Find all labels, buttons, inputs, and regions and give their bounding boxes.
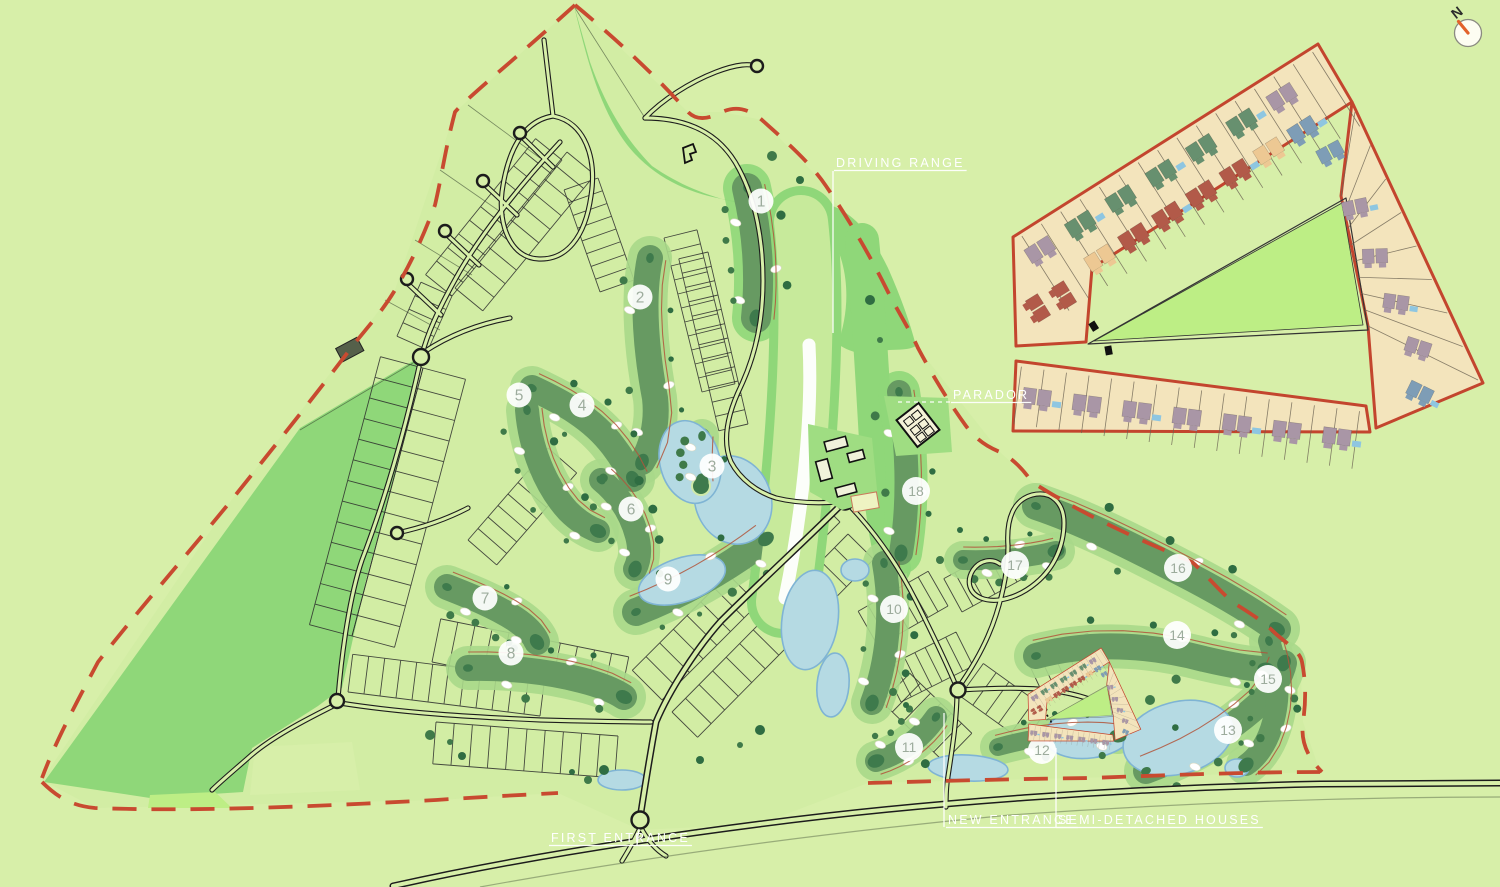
hole-number: 16 [1170, 560, 1186, 576]
golf-hole-marker-16: 16 [1164, 554, 1192, 582]
hole-number: 2 [636, 290, 645, 307]
label-text: DRIVING RANGE [836, 156, 965, 170]
golf-hole-marker-15: 15 [1254, 665, 1282, 693]
golf-hole-marker-17: 17 [1001, 551, 1029, 579]
hole-number: 7 [481, 591, 490, 608]
site-plan-page: DRIVING RANGEPARADORFIRST ENTRANCENEW EN… [0, 0, 1500, 887]
hole-number: 3 [708, 459, 717, 476]
golf-hole-marker-10: 10 [880, 595, 908, 623]
golf-resort-master-plan-map: DRIVING RANGEPARADORFIRST ENTRANCENEW EN… [0, 0, 1500, 887]
hole-number: 13 [1220, 722, 1236, 738]
label-text: PARADOR [953, 388, 1029, 402]
hole-number: 15 [1260, 671, 1276, 687]
hole-number: 4 [578, 398, 587, 415]
golf-hole-marker-4: 4 [570, 393, 595, 418]
hole-number: 9 [664, 572, 673, 589]
golf-hole-marker-3: 3 [700, 454, 725, 479]
hole-number: 14 [1169, 627, 1185, 643]
label-text: SEMI-DETACHED HOUSES [1058, 813, 1261, 827]
map-label-first-entrance: FIRST ENTRANCE [549, 829, 692, 846]
golf-hole-marker-14: 14 [1163, 621, 1191, 649]
hole-number: 12 [1034, 742, 1050, 758]
golf-hole-marker-7: 7 [473, 586, 498, 611]
hole-number: 17 [1007, 557, 1023, 573]
label-text: FIRST ENTRANCE [551, 831, 690, 845]
golf-hole-marker-2: 2 [628, 285, 653, 310]
golf-hole-marker-11: 11 [895, 733, 923, 761]
golf-hole-marker-6: 6 [619, 497, 644, 522]
golf-hole-marker-8: 8 [499, 641, 524, 666]
hole-number: 1 [757, 194, 766, 211]
hole-number: 8 [507, 646, 516, 663]
golf-hole-marker-5: 5 [507, 383, 532, 408]
hole-number: 5 [515, 388, 524, 405]
hole-number: 11 [902, 739, 917, 755]
golf-hole-marker-1: 1 [749, 189, 774, 214]
hole-number: 10 [886, 601, 902, 617]
hole-number: 6 [627, 502, 636, 519]
golf-hole-marker-9: 9 [656, 567, 681, 592]
hole-number: 18 [908, 483, 924, 499]
golf-hole-marker-18: 18 [902, 477, 930, 505]
golf-hole-marker-13: 13 [1214, 716, 1242, 744]
